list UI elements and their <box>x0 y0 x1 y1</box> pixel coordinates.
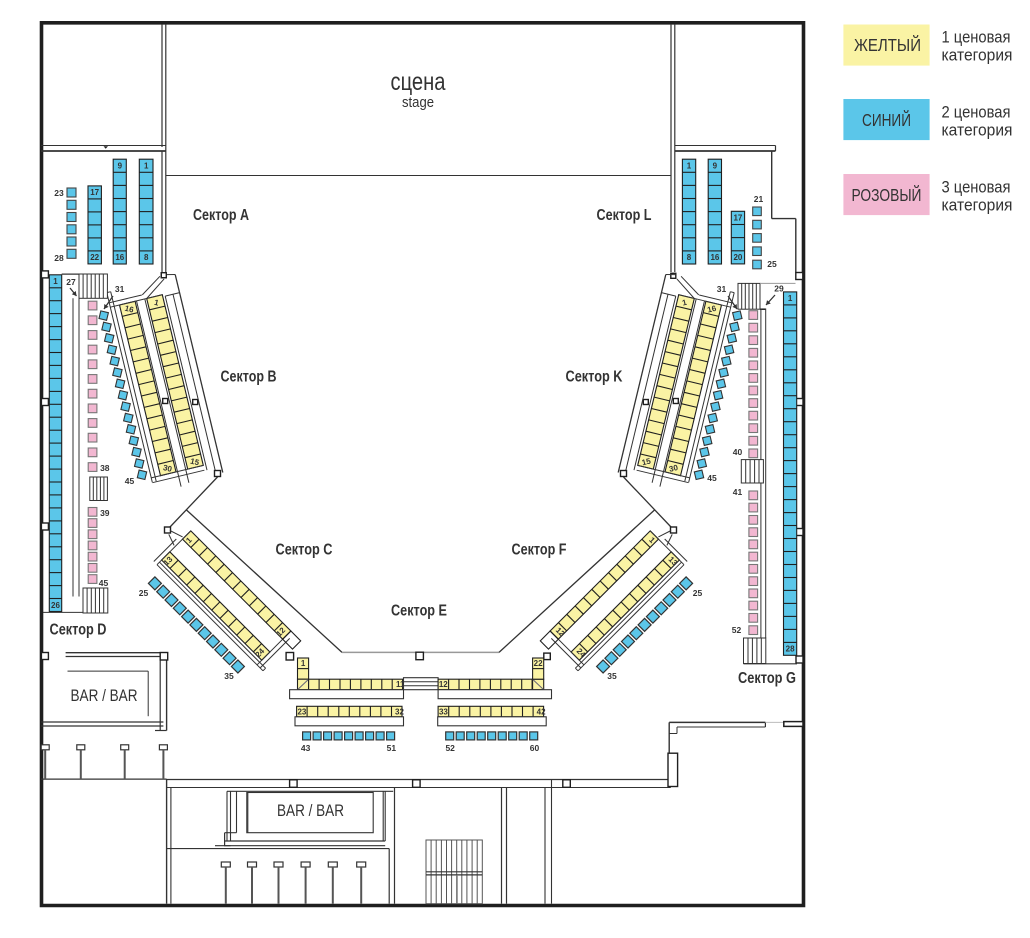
svg-text:29: 29 <box>774 284 784 294</box>
svg-text:17: 17 <box>90 188 99 197</box>
svg-text:45: 45 <box>707 473 717 483</box>
svg-text:Сектор D: Сектор D <box>50 622 107 639</box>
svg-text:52: 52 <box>445 743 455 753</box>
svg-text:40: 40 <box>733 447 743 457</box>
svg-text:51: 51 <box>387 743 397 753</box>
svg-text:12: 12 <box>439 680 448 689</box>
svg-text:25: 25 <box>139 588 149 598</box>
svg-text:Сектор A: Сектор A <box>193 207 249 224</box>
svg-text:17: 17 <box>733 214 742 223</box>
svg-text:32: 32 <box>395 707 404 716</box>
svg-text:Сектор E: Сектор E <box>391 603 447 620</box>
svg-text:9: 9 <box>118 162 123 171</box>
svg-text:21: 21 <box>754 194 764 204</box>
svg-text:1: 1 <box>687 162 692 171</box>
svg-text:Сектор L: Сектор L <box>597 207 652 224</box>
svg-text:1: 1 <box>301 659 306 668</box>
svg-text:категория: категория <box>942 121 1013 140</box>
svg-text:Сектор K: Сектор K <box>566 369 623 386</box>
svg-text:26: 26 <box>51 601 60 610</box>
svg-text:16: 16 <box>115 253 124 262</box>
svg-text:BAR / BAR: BAR / BAR <box>277 801 344 820</box>
svg-text:60: 60 <box>530 743 540 753</box>
svg-text:Сектор F: Сектор F <box>512 542 567 559</box>
svg-text:8: 8 <box>144 253 149 262</box>
svg-text:25: 25 <box>693 588 703 598</box>
svg-text:35: 35 <box>224 671 234 681</box>
svg-text:категория: категория <box>942 46 1013 65</box>
svg-text:9: 9 <box>713 162 718 171</box>
svg-text:Сектор C: Сектор C <box>276 542 333 559</box>
svg-text:3 ценовая: 3 ценовая <box>942 178 1011 197</box>
svg-text:1: 1 <box>53 277 58 286</box>
svg-text:31: 31 <box>115 284 125 294</box>
svg-text:22: 22 <box>534 659 543 668</box>
svg-text:Сектор G: Сектор G <box>738 670 796 687</box>
svg-text:31: 31 <box>717 284 727 294</box>
svg-text:22: 22 <box>90 253 99 262</box>
svg-text:28: 28 <box>786 645 795 654</box>
svg-text:Сектор B: Сектор B <box>221 369 277 386</box>
svg-text:27: 27 <box>66 277 76 287</box>
svg-text:39: 39 <box>100 508 110 518</box>
svg-text:35: 35 <box>607 671 617 681</box>
svg-text:43: 43 <box>301 743 311 753</box>
svg-text:52: 52 <box>732 625 742 635</box>
svg-text:23: 23 <box>297 707 306 716</box>
svg-text:41: 41 <box>733 487 743 497</box>
svg-text:33: 33 <box>439 707 448 716</box>
svg-text:28: 28 <box>54 253 64 263</box>
svg-text:20: 20 <box>733 253 742 262</box>
svg-text:8: 8 <box>687 253 692 262</box>
svg-text:ЖЕЛТЫЙ: ЖЕЛТЫЙ <box>854 34 921 55</box>
svg-text:1: 1 <box>788 294 793 303</box>
svg-text:BAR / BAR: BAR / BAR <box>71 686 138 705</box>
svg-text:42: 42 <box>537 707 546 716</box>
svg-text:1: 1 <box>144 162 149 171</box>
svg-text:16: 16 <box>710 253 719 262</box>
svg-text:сцена: сцена <box>391 68 446 96</box>
svg-text:РОЗОВЫЙ: РОЗОВЫЙ <box>852 184 922 205</box>
svg-text:38: 38 <box>100 463 110 473</box>
svg-text:2 ценовая: 2 ценовая <box>942 103 1011 122</box>
svg-text:23: 23 <box>54 188 64 198</box>
svg-text:stage: stage <box>402 94 434 111</box>
svg-text:45: 45 <box>99 578 109 588</box>
svg-text:СИНИЙ: СИНИЙ <box>862 109 911 130</box>
svg-text:25: 25 <box>767 259 777 269</box>
svg-text:45: 45 <box>125 476 135 486</box>
svg-text:категория: категория <box>942 196 1013 215</box>
svg-text:1 ценовая: 1 ценовая <box>942 28 1011 47</box>
